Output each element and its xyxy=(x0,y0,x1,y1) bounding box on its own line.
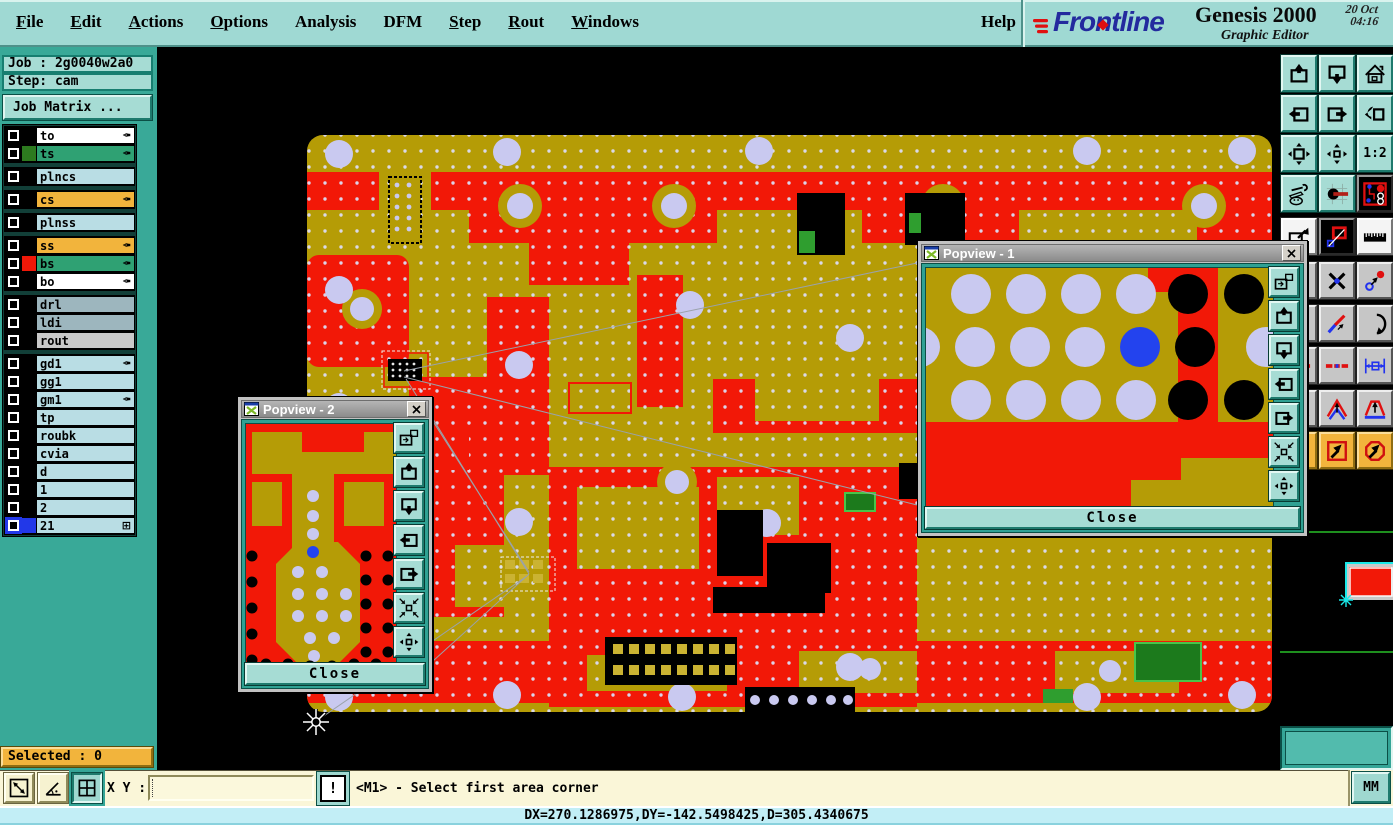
layer-visibility-checkbox[interactable] xyxy=(5,296,22,313)
layer-name: d xyxy=(40,465,47,479)
layer-row-d[interactable]: d xyxy=(5,463,134,481)
layer-name: gm1 xyxy=(40,393,62,407)
layer-name-field[interactable]: plnss xyxy=(36,215,134,230)
popview1-zoom-fit-axis-button[interactable] xyxy=(1269,471,1299,501)
layer-visibility-checkbox[interactable] xyxy=(5,255,22,272)
layer-color-swatch[interactable] xyxy=(22,215,36,230)
layer-name-field[interactable]: 21⊞ xyxy=(36,518,134,533)
layer-color-swatch[interactable] xyxy=(22,464,36,479)
brand-block: Frontline Genesis 2000 20 Oct 04:16 Grap… xyxy=(1021,0,1393,47)
layer-row-rout[interactable]: rout xyxy=(5,332,134,349)
layer-row-tp[interactable]: tp xyxy=(5,409,134,427)
layer-row-plnss[interactable]: plnss xyxy=(5,214,134,231)
delta-values: DX=270.1286975,DY=-142.5498425,D=305.434… xyxy=(524,808,868,823)
layer-visibility-checkbox[interactable] xyxy=(5,237,22,254)
popview2-zoom-fit-axis-button[interactable] xyxy=(394,627,424,657)
layer-name: plncs xyxy=(40,170,76,184)
layer-name: drl xyxy=(40,298,62,312)
tool-zoom-fit-window[interactable] xyxy=(1281,135,1317,172)
frontline-logo: Frontline xyxy=(1033,6,1164,38)
layer-row-21[interactable]: 21⊞ xyxy=(5,517,134,534)
popview1-view-up-button[interactable] xyxy=(1269,301,1299,331)
tool-direction-closed[interactable] xyxy=(1357,390,1393,427)
layer-name-field[interactable]: bs✒ xyxy=(36,256,134,271)
layer-color-swatch[interactable] xyxy=(22,297,36,312)
window-icon xyxy=(924,246,939,260)
tool-editor-setup-tools[interactable] xyxy=(1281,175,1317,212)
layer-name: gg1 xyxy=(40,375,62,389)
popview2-titlebar[interactable]: Popview - 2 xyxy=(241,400,429,418)
layer-visibility-checkbox[interactable] xyxy=(5,355,22,372)
layer-name: cs xyxy=(40,193,54,207)
popview2-close-icon[interactable] xyxy=(407,401,426,417)
genesis-2000-window: FileEditActionsOptionsAnalysisDFMStepRou… xyxy=(0,0,1393,825)
layer-visibility-checkbox[interactable] xyxy=(5,332,22,349)
tool-add-sloped-line[interactable] xyxy=(1319,305,1355,342)
layer-row-cs[interactable]: cs✒ xyxy=(5,191,134,208)
layer-row-to[interactable]: to✒ xyxy=(5,127,134,145)
tool-home-view[interactable] xyxy=(1357,55,1393,92)
layer-visibility-checkbox[interactable] xyxy=(5,214,22,231)
popview2-view-right-button[interactable] xyxy=(394,559,424,589)
measure-distance-button[interactable] xyxy=(4,773,34,803)
layer-visibility-checkbox[interactable] xyxy=(5,481,22,498)
clock: 20 Oct 04:16 xyxy=(1344,3,1381,27)
layer-name: tp xyxy=(40,411,54,425)
layer-color-swatch[interactable] xyxy=(22,392,36,407)
layer-name: ss xyxy=(40,239,54,253)
layer-visibility-checkbox[interactable] xyxy=(5,145,22,162)
tool-zoom-center-window[interactable] xyxy=(1319,135,1355,172)
tool-zoom-window-out[interactable] xyxy=(1319,55,1355,92)
layer-row-roubk[interactable]: roubk xyxy=(5,427,134,445)
layer-color-swatch[interactable] xyxy=(22,315,36,330)
tool-previous-view[interactable] xyxy=(1357,95,1393,132)
menu-bar: FileEditActionsOptionsAnalysisDFMStepRou… xyxy=(0,0,1393,48)
tool-scroll-view-right[interactable] xyxy=(1319,95,1355,132)
popview2-view-up-button[interactable] xyxy=(394,457,424,487)
popview1-close-icon[interactable] xyxy=(1282,245,1301,261)
layer-name: gd1 xyxy=(40,357,62,371)
layer-row-1[interactable]: 1 xyxy=(5,481,134,499)
layer-name-field[interactable]: 2 xyxy=(36,500,134,515)
layer-name-field[interactable]: to✒ xyxy=(36,128,134,143)
layer-color-swatch[interactable] xyxy=(22,482,36,497)
layer-edit-pen-icon: ✒ xyxy=(122,148,131,159)
menu-items: FileEditActionsOptionsAnalysisDFMStepRou… xyxy=(16,12,639,32)
popview1-titlebar[interactable]: Popview - 1 xyxy=(921,244,1304,262)
layer-row-gg1[interactable]: gg1 xyxy=(5,373,134,391)
popview2-duplicate-view-button[interactable] xyxy=(394,423,424,453)
layer-name: ts xyxy=(40,147,54,161)
menu-item-options[interactable]: Options xyxy=(210,12,268,32)
layer-name-field[interactable]: drl xyxy=(36,297,134,312)
popview2-view-left-button[interactable] xyxy=(394,525,424,555)
popview1-content[interactable] xyxy=(925,267,1274,512)
menu-item-edit[interactable]: Edit xyxy=(70,12,101,32)
tool-change-trace[interactable] xyxy=(1319,347,1355,384)
tool-add-arc[interactable] xyxy=(1357,305,1393,342)
grid-window-button[interactable] xyxy=(72,773,102,803)
units-toggle-button[interactable]: MM xyxy=(1352,772,1390,803)
layer-edit-pen-icon: ✒ xyxy=(122,130,131,141)
layer-visibility-checkbox[interactable] xyxy=(5,463,22,480)
layer-name-field[interactable]: 1 xyxy=(36,482,134,497)
layer-name: 2 xyxy=(40,501,47,515)
menu-item-help[interactable]: Help xyxy=(981,12,1016,32)
layer-edit-pen-icon: ✒ xyxy=(122,358,131,369)
layer-name-field[interactable]: ldi xyxy=(36,315,134,330)
layer-visibility-checkbox[interactable] xyxy=(5,409,22,426)
layer-color-swatch[interactable] xyxy=(22,169,36,184)
command-bar: X Y : ! <M1> - Select first area corner xyxy=(0,770,1393,806)
xy-coordinate-input[interactable] xyxy=(148,775,314,801)
layer-edit-pen-icon: ✒ xyxy=(122,258,131,269)
alert-button[interactable]: ! xyxy=(320,775,346,802)
layer-visibility-checkbox[interactable] xyxy=(5,427,22,444)
zoom-ratio-label: 1:2 xyxy=(1363,146,1386,161)
layer-color-swatch[interactable] xyxy=(22,274,36,289)
layer-row-ldi[interactable]: ldi xyxy=(5,314,134,332)
delta-readout-strip: DX=270.1286975,DY=-142.5498425,D=305.434… xyxy=(0,806,1393,825)
popview1-view-right-button[interactable] xyxy=(1269,403,1299,433)
popview2-view-down-button[interactable] xyxy=(394,491,424,521)
tool-pad-dimension[interactable] xyxy=(1357,347,1393,384)
layer-color-swatch[interactable] xyxy=(22,146,36,161)
layer-color-swatch[interactable] xyxy=(22,374,36,389)
layer-name-field[interactable]: cvia xyxy=(36,446,134,461)
layer-visibility-checkbox[interactable] xyxy=(5,168,22,185)
layer-row-gd1[interactable]: gd1✒ xyxy=(5,355,134,373)
layer-visibility-checkbox[interactable] xyxy=(5,273,22,290)
popview-window-2[interactable]: Popview - 2 xyxy=(237,396,433,693)
menu-item-actions[interactable]: Actions xyxy=(129,12,184,32)
layer-name-field[interactable]: bo✒ xyxy=(36,274,134,289)
popview2-content[interactable] xyxy=(245,423,397,668)
layer-name: ldi xyxy=(40,316,62,330)
layer-name-field[interactable]: gm1✒ xyxy=(36,392,134,407)
popview1-zoom-fit-diagonal-button[interactable] xyxy=(1269,437,1299,467)
sidebar: Job : 2g0040w2a0 Step: cam Job Matrix ..… xyxy=(0,47,157,770)
layer-name: rout xyxy=(40,334,69,348)
layer-edit-pen-icon: ✒ xyxy=(122,240,131,251)
layer-visibility-checkbox[interactable] xyxy=(5,517,22,534)
menu-item-dfm[interactable]: DFM xyxy=(383,12,422,32)
tool-ruler-overlay[interactable] xyxy=(1357,218,1393,255)
popview1-view-down-button[interactable] xyxy=(1269,335,1299,365)
layer-visibility-checkbox[interactable] xyxy=(5,191,22,208)
popview1-view-left-button[interactable] xyxy=(1269,369,1299,399)
status-prompt: <M1> - Select first area corner xyxy=(356,781,599,796)
xy-label: X Y : xyxy=(107,781,146,796)
layer-name-field[interactable]: roubk xyxy=(36,428,134,443)
job-matrix-button[interactable]: Job Matrix ... xyxy=(3,95,152,120)
layer-row-cvia[interactable]: cvia xyxy=(5,445,134,463)
layer-edit-pen-icon: ✒ xyxy=(122,394,131,405)
layer-row-ss[interactable]: ss✒ xyxy=(5,237,134,255)
popview2-body: Close xyxy=(241,419,429,689)
layer-visibility-checkbox[interactable] xyxy=(5,127,22,144)
layer-name: to xyxy=(40,129,54,143)
layer-color-swatch[interactable] xyxy=(22,410,36,425)
layer-visibility-checkbox[interactable] xyxy=(5,391,22,408)
layer-color-swatch[interactable] xyxy=(22,333,36,348)
layer-name: bo xyxy=(40,275,54,289)
selected-count-box: Selected : 0 xyxy=(1,747,153,767)
layer-color-swatch[interactable] xyxy=(22,518,36,533)
job-name-box: Job : 2g0040w2a0 xyxy=(2,55,153,73)
layer-color-swatch[interactable] xyxy=(22,128,36,143)
layer-name: cvia xyxy=(40,447,69,461)
app-subtitle: Graphic Editor xyxy=(1221,28,1309,44)
layer-name-field[interactable]: gg1 xyxy=(36,374,134,389)
popview2-close-button[interactable]: Close xyxy=(245,663,425,685)
window-icon xyxy=(244,402,259,416)
layer-name-field[interactable]: ts✒ xyxy=(36,146,134,161)
layer-row-2[interactable]: 2 xyxy=(5,499,134,517)
layer-color-swatch[interactable] xyxy=(22,238,36,253)
layer-name-field[interactable]: ss✒ xyxy=(36,238,134,253)
layer-color-swatch[interactable] xyxy=(22,446,36,461)
tool-scroll-view-left[interactable] xyxy=(1281,95,1317,132)
layer-color-swatch[interactable] xyxy=(22,192,36,207)
layer-row-bs[interactable]: bs✒ xyxy=(5,255,134,273)
layer-name: 21 xyxy=(40,519,54,533)
layer-name-field[interactable]: rout xyxy=(36,333,134,348)
layer-grid-icon: ⊞ xyxy=(122,520,131,531)
text-caret xyxy=(152,779,153,797)
layer-row-plncs[interactable]: plncs xyxy=(5,168,134,185)
step-name-box: Step: cam xyxy=(2,73,153,91)
tool-measure-knob[interactable] xyxy=(1319,175,1355,212)
selected-rectangle-artwork xyxy=(1339,563,1393,607)
layer-name-field[interactable]: cs✒ xyxy=(36,192,134,207)
layer-name-field[interactable]: plncs xyxy=(36,169,134,184)
layer-edit-pen-icon: ✒ xyxy=(122,194,131,205)
measure-angle-button[interactable] xyxy=(38,773,68,803)
tool-zoom-ratio-1-2[interactable]: 1:2 xyxy=(1357,135,1393,172)
menu-item-windows[interactable]: Windows xyxy=(571,12,639,32)
tool-zoom-window-in[interactable] xyxy=(1281,55,1317,92)
layer-row-drl[interactable]: drl xyxy=(5,296,134,314)
popview1-body: Close xyxy=(921,263,1304,533)
tool-netlist-viewer[interactable] xyxy=(1357,175,1393,212)
layer-row-ts[interactable]: ts✒ xyxy=(5,145,134,162)
logo-speedlines-icon xyxy=(1031,15,1053,39)
popview1-toolbar xyxy=(1269,267,1301,505)
tool-direction-open[interactable] xyxy=(1319,390,1355,427)
layer-visibility-checkbox[interactable] xyxy=(5,314,22,331)
popview1-duplicate-view-button[interactable] xyxy=(1269,267,1299,297)
layer-visibility-checkbox[interactable] xyxy=(5,445,22,462)
layer-row-gm1[interactable]: gm1✒ xyxy=(5,391,134,409)
coordinate-readout: X = -111.7227 Y = -481.6547 xyxy=(1280,726,1393,770)
layer-row-bo[interactable]: bo✒ xyxy=(5,273,134,290)
clock-time: 04:16 xyxy=(1344,15,1379,27)
menu-item-step[interactable]: Step xyxy=(449,12,481,32)
tool-compare-windows[interactable] xyxy=(1319,218,1355,255)
layer-name: roubk xyxy=(40,429,76,443)
layer-name-field[interactable]: d xyxy=(36,464,134,479)
popview2-toolbar xyxy=(394,423,426,661)
layer-color-swatch[interactable] xyxy=(22,428,36,443)
popview1-close-button[interactable]: Close xyxy=(925,507,1300,529)
layer-color-swatch[interactable] xyxy=(22,356,36,371)
popview2-zoom-fit-diagonal-button[interactable] xyxy=(394,593,424,623)
tool-select-inside-polygon[interactable] xyxy=(1357,432,1393,469)
tool-delete-reference[interactable] xyxy=(1319,262,1355,299)
product-title: Genesis 2000 xyxy=(1195,2,1317,28)
layer-color-swatch[interactable] xyxy=(22,500,36,515)
popview-window-1[interactable]: Popview - 1 xyxy=(917,240,1308,537)
layer-visibility-checkbox[interactable] xyxy=(5,499,22,516)
tool-move-origin[interactable] xyxy=(1357,262,1393,299)
menu-item-file[interactable]: File xyxy=(16,12,43,32)
layer-color-swatch[interactable] xyxy=(22,256,36,271)
layer-name-field[interactable]: tp xyxy=(36,410,134,425)
popview1-title: Popview - 1 xyxy=(943,246,1015,261)
layer-name-field[interactable]: gd1✒ xyxy=(36,356,134,371)
layer-list-panel: to✒ts✒plncscs✒plnssss✒bs✒bo✒drlldiroutgd… xyxy=(2,124,137,537)
menu-item-analysis[interactable]: Analysis xyxy=(295,12,356,32)
tool-select-inside-rectangle[interactable] xyxy=(1319,432,1355,469)
menu-item-rout[interactable]: Rout xyxy=(508,12,544,32)
layer-visibility-checkbox[interactable] xyxy=(5,373,22,390)
layer-name: plnss xyxy=(40,216,76,230)
layer-edit-pen-icon: ✒ xyxy=(122,276,131,287)
layer-name: bs xyxy=(40,257,54,271)
popview2-title: Popview - 2 xyxy=(263,402,335,417)
layer-name: 1 xyxy=(40,483,47,497)
